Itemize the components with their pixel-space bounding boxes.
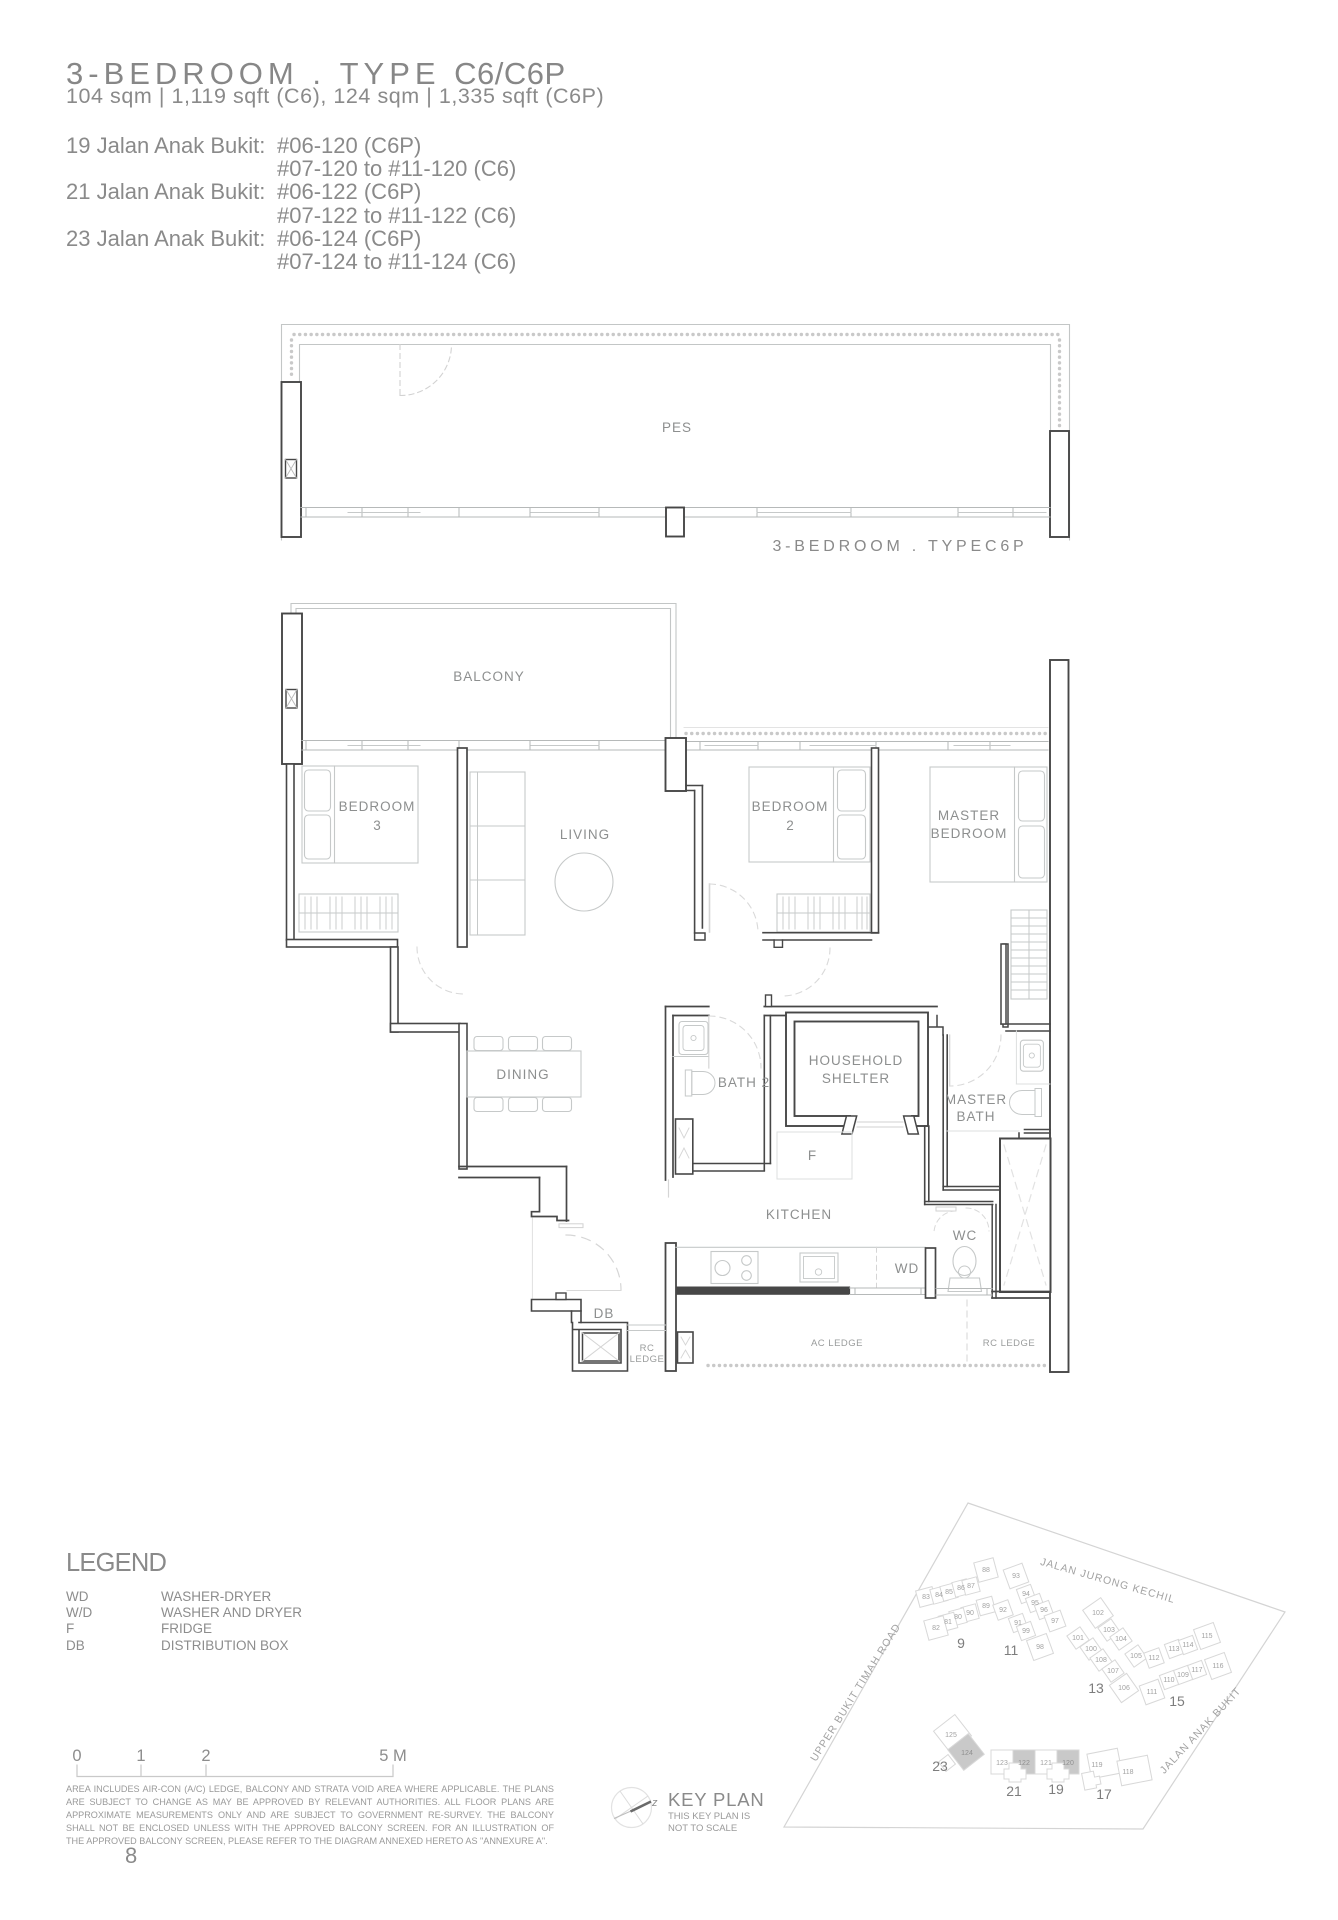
svg-text:92: 92: [999, 1607, 1007, 1614]
svg-text:SHELTER: SHELTER: [822, 1071, 890, 1086]
svg-text:LEDGE: LEDGE: [630, 1354, 665, 1365]
svg-text:11: 11: [1004, 1642, 1019, 1658]
svg-text:114: 114: [1182, 1642, 1193, 1649]
svg-text:109: 109: [1177, 1672, 1189, 1679]
svg-text:83: 83: [922, 1594, 930, 1601]
svg-text:116: 116: [1212, 1663, 1223, 1670]
svg-text:1: 1: [136, 1747, 145, 1765]
svg-text:3: 3: [373, 818, 381, 833]
svg-text:0: 0: [72, 1747, 81, 1765]
svg-text:BEDROOM: BEDROOM: [339, 799, 416, 814]
svg-text:BATH: BATH: [956, 1109, 995, 1124]
svg-text:9: 9: [957, 1635, 965, 1651]
svg-text:MASTER: MASTER: [938, 808, 1000, 823]
svg-text:110: 110: [1163, 1677, 1174, 1684]
svg-text:HOUSEHOLD: HOUSEHOLD: [809, 1053, 904, 1068]
svg-text:113: 113: [1168, 1646, 1179, 1653]
svg-text:100: 100: [1085, 1646, 1097, 1653]
svg-text:103: 103: [1103, 1627, 1115, 1634]
svg-text:19: 19: [1048, 1781, 1064, 1797]
svg-text:15: 15: [1169, 1693, 1185, 1709]
svg-text:120: 120: [1062, 1760, 1074, 1767]
svg-text:122: 122: [1018, 1760, 1030, 1767]
svg-text:88: 88: [982, 1567, 990, 1574]
svg-text:85: 85: [945, 1589, 953, 1596]
svg-text:DB: DB: [594, 1306, 615, 1321]
svg-text:107: 107: [1107, 1668, 1119, 1675]
svg-text:97: 97: [1051, 1618, 1059, 1625]
svg-text:5 M: 5 M: [379, 1747, 407, 1765]
svg-text:86: 86: [957, 1585, 965, 1592]
svg-text:UPPER BUKIT TIMAH ROAD: UPPER BUKIT TIMAH ROAD: [808, 1621, 903, 1763]
svg-text:F: F: [808, 1148, 816, 1163]
svg-text:13: 13: [1088, 1680, 1104, 1696]
svg-text:124: 124: [961, 1750, 973, 1757]
svg-text:BALCONY: BALCONY: [453, 669, 525, 684]
svg-text:108: 108: [1095, 1657, 1107, 1664]
svg-text:21: 21: [1006, 1783, 1022, 1799]
svg-text:96: 96: [1040, 1607, 1048, 1614]
svg-text:JALAN JURONG KECHIL: JALAN JURONG KECHIL: [1039, 1556, 1177, 1606]
svg-text:84: 84: [935, 1592, 943, 1599]
svg-text:119: 119: [1091, 1762, 1102, 1769]
svg-text:BEDROOM: BEDROOM: [752, 799, 829, 814]
svg-text:90: 90: [966, 1610, 974, 1617]
svg-text:81: 81: [944, 1619, 952, 1626]
svg-text:BEDROOM: BEDROOM: [931, 826, 1008, 841]
svg-text:2: 2: [201, 1747, 210, 1765]
svg-text:87: 87: [967, 1583, 975, 1590]
svg-text:RC LEDGE: RC LEDGE: [983, 1338, 1036, 1349]
svg-text:118: 118: [1122, 1769, 1133, 1776]
svg-text:117: 117: [1191, 1667, 1202, 1674]
svg-text:23: 23: [932, 1758, 948, 1774]
svg-text:123: 123: [996, 1760, 1008, 1767]
svg-text:91: 91: [1014, 1620, 1022, 1627]
svg-text:93: 93: [1012, 1573, 1020, 1580]
svg-text:LIVING: LIVING: [560, 827, 610, 842]
svg-text:RC: RC: [640, 1343, 655, 1354]
svg-text:AC LEDGE: AC LEDGE: [811, 1338, 863, 1349]
svg-text:KITCHEN: KITCHEN: [766, 1207, 832, 1222]
svg-text:105: 105: [1130, 1653, 1142, 1660]
svg-text:PES: PES: [662, 420, 692, 435]
svg-text:94: 94: [1022, 1591, 1030, 1598]
svg-text:101: 101: [1072, 1635, 1084, 1642]
svg-text:95: 95: [1031, 1600, 1039, 1607]
svg-text:89: 89: [982, 1603, 990, 1610]
svg-text:DINING: DINING: [496, 1067, 549, 1082]
svg-text:115: 115: [1201, 1633, 1212, 1640]
svg-text:82: 82: [932, 1625, 940, 1632]
svg-text:99: 99: [1022, 1628, 1030, 1635]
svg-text:102: 102: [1092, 1610, 1104, 1617]
svg-text:WC: WC: [953, 1228, 978, 1243]
svg-text:WD: WD: [895, 1261, 920, 1276]
svg-text:104: 104: [1115, 1636, 1127, 1643]
svg-text:z: z: [651, 1797, 658, 1809]
svg-text:2: 2: [786, 818, 794, 833]
svg-text:17: 17: [1096, 1786, 1112, 1802]
svg-text:80: 80: [954, 1614, 962, 1621]
svg-text:98: 98: [1036, 1644, 1044, 1651]
svg-text:MASTER: MASTER: [945, 1092, 1007, 1107]
svg-text:121: 121: [1040, 1760, 1052, 1767]
svg-text:106: 106: [1118, 1685, 1130, 1692]
svg-text:125: 125: [945, 1732, 957, 1739]
svg-text:3-BEDROOM . TYPEC6P: 3-BEDROOM . TYPEC6P: [772, 538, 1027, 555]
svg-text:111: 111: [1147, 1689, 1158, 1696]
svg-text:BATH 2: BATH 2: [718, 1075, 770, 1090]
svg-text:112: 112: [1148, 1655, 1159, 1662]
